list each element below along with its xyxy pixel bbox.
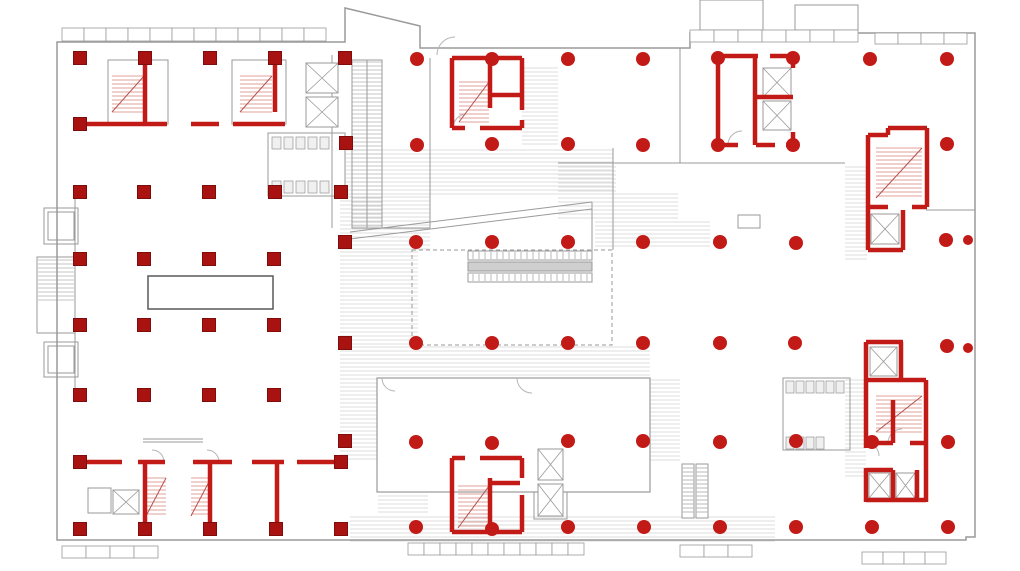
reception-desk <box>148 276 273 309</box>
rooftop-blocks <box>700 0 858 30</box>
escalator-mid <box>468 262 592 271</box>
floor-plan-drawing <box>0 0 1020 571</box>
retail-room <box>377 378 650 492</box>
floor-plan <box>0 0 1020 571</box>
columns-round-red-small <box>963 235 973 353</box>
